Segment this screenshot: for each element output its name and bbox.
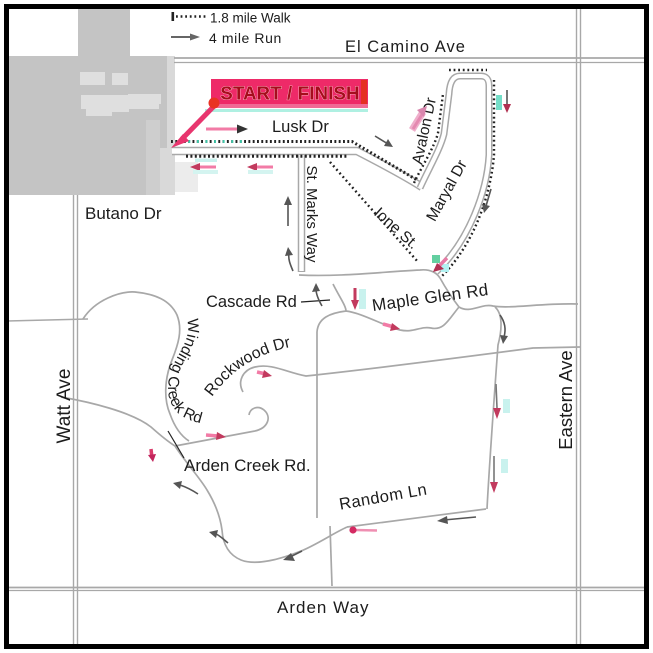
svg-text:Eastern Ave: Eastern Ave	[555, 350, 576, 449]
svg-text:1.8 mile Walk: 1.8 mile Walk	[210, 11, 291, 26]
svg-text:El Camino Ave: El Camino Ave	[345, 38, 466, 56]
svg-text:Arden Way: Arden Way	[277, 598, 369, 617]
svg-text:4 mile Run: 4 mile Run	[209, 30, 282, 46]
svg-text:Watt Ave: Watt Ave	[54, 369, 75, 444]
svg-text:Arden Creek Rd.: Arden Creek Rd.	[184, 456, 311, 475]
svg-text:START / FINISH: START / FINISH	[220, 83, 359, 104]
svg-text:Lusk Dr: Lusk Dr	[272, 118, 329, 136]
svg-text:Butano Dr: Butano Dr	[85, 204, 162, 223]
svg-text:St. Marks Way: St. Marks Way	[303, 166, 320, 263]
svg-text:Cascade Rd: Cascade Rd	[206, 293, 297, 311]
